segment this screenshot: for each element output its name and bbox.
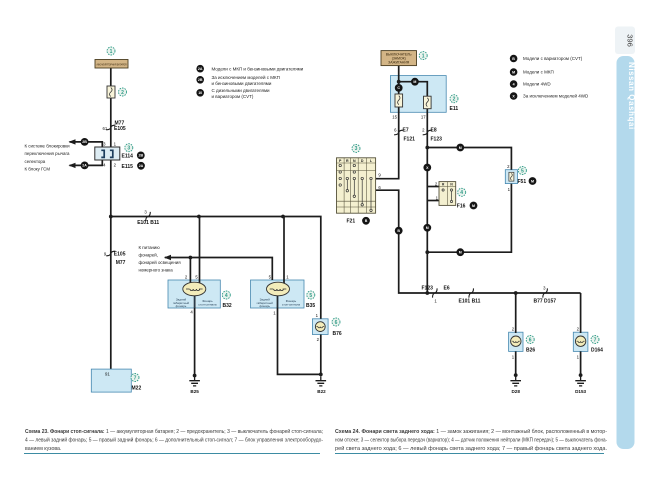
svg-text:2: 2 xyxy=(317,337,320,342)
svg-text:M: M xyxy=(426,226,429,230)
svg-text:Nissan Qashqai: Nissan Qashqai xyxy=(627,62,636,130)
svg-text:Модели с МКП: Модели с МКП xyxy=(523,70,554,75)
svg-text:стоп-сигнала: стоп-сигнала xyxy=(282,303,300,307)
svg-text:M: M xyxy=(413,80,416,84)
svg-text:рей света заднего хода; 6 — ле: рей света заднего хода; 6 — левый фонарь… xyxy=(335,445,607,452)
svg-text:E101 B11: E101 B11 xyxy=(137,220,159,226)
svg-text:N: N xyxy=(353,159,356,163)
svg-text:2: 2 xyxy=(577,326,580,331)
svg-text:B: B xyxy=(397,229,400,233)
svg-text:B77 D157: B77 D157 xyxy=(534,299,557,305)
svg-text:E105: E105 xyxy=(114,252,126,258)
svg-text:1: 1 xyxy=(422,53,425,59)
svg-text:M22: M22 xyxy=(132,386,142,392)
svg-text:и вариатором (CVT): и вариатором (CVT) xyxy=(212,94,254,99)
svg-text:396: 396 xyxy=(626,34,635,47)
svg-text:1: 1 xyxy=(434,299,437,304)
svg-text:2A: 2A xyxy=(198,67,203,71)
svg-text:2: 2 xyxy=(435,181,438,186)
svg-text:M: M xyxy=(459,251,462,255)
svg-text:6: 6 xyxy=(394,128,397,133)
svg-text:2: 2 xyxy=(453,97,456,103)
svg-text:E8: E8 xyxy=(431,128,437,134)
svg-text:Схема 23. Фонари стоп-сигнала:: Схема 23. Фонари стоп-сигнала: 1 — аккум… xyxy=(25,428,323,435)
svg-text:4: 4 xyxy=(460,190,463,196)
svg-text:1: 1 xyxy=(316,313,319,318)
svg-text:1: 1 xyxy=(512,355,515,360)
svg-text:номерного знака: номерного знака xyxy=(139,268,174,273)
svg-text:4: 4 xyxy=(190,310,193,315)
svg-text:E115: E115 xyxy=(122,164,134,170)
svg-text:M: M xyxy=(472,204,475,208)
svg-text:6: 6 xyxy=(335,320,338,326)
svg-text:фонарь: фонарь xyxy=(259,304,270,308)
svg-text:2: 2 xyxy=(185,275,188,280)
svg-text:и бензиновыми двигателями: и бензиновыми двигателями xyxy=(212,81,272,86)
svg-text:3: 3 xyxy=(144,210,147,215)
svg-text:F21: F21 xyxy=(347,219,356,225)
svg-text:1: 1 xyxy=(508,187,511,192)
svg-text:B25: B25 xyxy=(190,389,199,394)
svg-text:E114: E114 xyxy=(122,153,134,159)
svg-text:M: M xyxy=(459,146,462,150)
svg-text:B: B xyxy=(365,219,368,223)
svg-text:D28: D28 xyxy=(511,389,520,394)
svg-text:2B: 2B xyxy=(138,154,143,158)
svg-text:2A: 2A xyxy=(82,164,87,168)
svg-text:7: 7 xyxy=(594,337,597,343)
svg-text:4 — левый задний фонарь; 5 — п: 4 — левый задний фонарь; 5 — правый задн… xyxy=(25,437,323,444)
svg-text:стоп-сигнала: стоп-сигнала xyxy=(198,303,216,307)
svg-text:За исключением моделей 4WD: За исключением моделей 4WD xyxy=(523,93,589,99)
svg-text:1: 1 xyxy=(286,275,289,280)
svg-text:5: 5 xyxy=(195,275,198,280)
svg-text:B26: B26 xyxy=(526,348,535,354)
svg-text:4: 4 xyxy=(225,293,228,299)
svg-text:1: 1 xyxy=(577,355,580,360)
svg-text:1: 1 xyxy=(114,142,117,147)
svg-text:C: C xyxy=(397,86,400,90)
svg-text:M: M xyxy=(512,70,515,74)
svg-text:2B: 2B xyxy=(198,78,203,82)
svg-text:E101 B11: E101 B11 xyxy=(459,299,481,305)
svg-text:1: 1 xyxy=(273,311,276,316)
svg-text:6: 6 xyxy=(529,337,532,343)
svg-text:4: 4 xyxy=(513,82,515,86)
svg-text:F51: F51 xyxy=(518,179,527,185)
svg-text:R: R xyxy=(346,159,349,163)
svg-text:2: 2 xyxy=(121,90,124,96)
svg-text:фонарь: фонарь xyxy=(176,304,187,308)
svg-text:B22: B22 xyxy=(317,389,326,394)
svg-text:9: 9 xyxy=(378,173,381,178)
svg-text:3: 3 xyxy=(543,286,546,291)
svg-text:2B: 2B xyxy=(82,140,87,144)
svg-text:ванием кузова.: ванием кузова. xyxy=(25,446,61,452)
svg-text:селектора: селектора xyxy=(25,159,46,164)
svg-text:10: 10 xyxy=(198,91,202,95)
svg-text:B32: B32 xyxy=(223,303,232,309)
svg-text:D153: D153 xyxy=(575,389,586,394)
svg-text:фонарей освещения: фонарей освещения xyxy=(139,260,182,265)
svg-text:E11: E11 xyxy=(450,106,459,112)
svg-text:5: 5 xyxy=(309,293,312,299)
svg-text:D: D xyxy=(361,159,364,163)
svg-text:D164: D164 xyxy=(591,348,603,354)
svg-text:2A: 2A xyxy=(139,164,144,168)
svg-text:F123: F123 xyxy=(431,137,443,143)
svg-text:К питанию: К питанию xyxy=(139,245,161,250)
svg-text:ЗАЖИГАНИЯ: ЗАЖИГАНИЯ xyxy=(388,61,410,65)
svg-text:За исключением моделей с МКП: За исключением моделей с МКП xyxy=(212,74,280,80)
svg-text:К блоку ГСМ: К блоку ГСМ xyxy=(25,167,51,172)
svg-text:F123: F123 xyxy=(422,286,434,292)
svg-text:F16: F16 xyxy=(457,204,466,210)
svg-text:Модели 4WD: Модели 4WD xyxy=(523,82,551,87)
svg-text:Схема 24. Фонари света заднего: Схема 24. Фонари света заднего хода: 1 —… xyxy=(335,428,607,435)
svg-text:2: 2 xyxy=(507,164,510,169)
svg-text:61: 61 xyxy=(103,126,108,131)
svg-text:Модели с вариатором (CVT): Модели с вариатором (CVT) xyxy=(523,56,583,61)
svg-text:5: 5 xyxy=(521,168,524,174)
svg-text:7: 7 xyxy=(134,375,137,381)
svg-text:5: 5 xyxy=(269,275,272,280)
svg-text:E7: E7 xyxy=(403,128,409,134)
svg-text:3: 3 xyxy=(103,142,106,147)
svg-text:3: 3 xyxy=(355,146,358,152)
svg-text:B: B xyxy=(512,57,515,61)
svg-text:Модели с МКП и бензиновыми дви: Модели с МКП и бензиновыми двигателями xyxy=(212,66,304,71)
svg-text:17: 17 xyxy=(421,114,426,119)
svg-text:6: 6 xyxy=(378,185,381,190)
svg-text:F121: F121 xyxy=(404,137,416,143)
svg-text:B35: B35 xyxy=(306,303,315,309)
svg-text:E6: E6 xyxy=(444,286,450,292)
svg-text:B76: B76 xyxy=(333,331,342,337)
svg-text:2: 2 xyxy=(512,326,515,331)
svg-text:переключения рычага: переключения рычага xyxy=(25,151,70,156)
svg-text:15: 15 xyxy=(392,114,397,119)
svg-text:1: 1 xyxy=(110,49,113,55)
svg-text:АККУМУЛЯТОРНАЯ БАТАРЕЯ: АККУМУЛЯТОРНАЯ БАТАРЕЯ xyxy=(97,62,127,66)
svg-text:91: 91 xyxy=(105,372,110,377)
svg-text:ном отсеке; 3 — селектор выбор: ном отсеке; 3 — селектор выбора передач … xyxy=(335,437,607,444)
svg-text:4: 4 xyxy=(103,162,106,167)
svg-text:2: 2 xyxy=(422,128,425,133)
svg-text:3: 3 xyxy=(127,146,130,152)
svg-text:К системе блокировки: К системе блокировки xyxy=(25,144,71,149)
svg-text:M77: M77 xyxy=(116,260,126,266)
svg-text:M: M xyxy=(531,179,534,183)
svg-text:С дизельными двигателями: С дизельными двигателями xyxy=(212,88,271,93)
svg-text:E105: E105 xyxy=(114,126,126,132)
svg-text:фонарей,: фонарей, xyxy=(139,253,158,258)
svg-text:2: 2 xyxy=(114,162,117,167)
